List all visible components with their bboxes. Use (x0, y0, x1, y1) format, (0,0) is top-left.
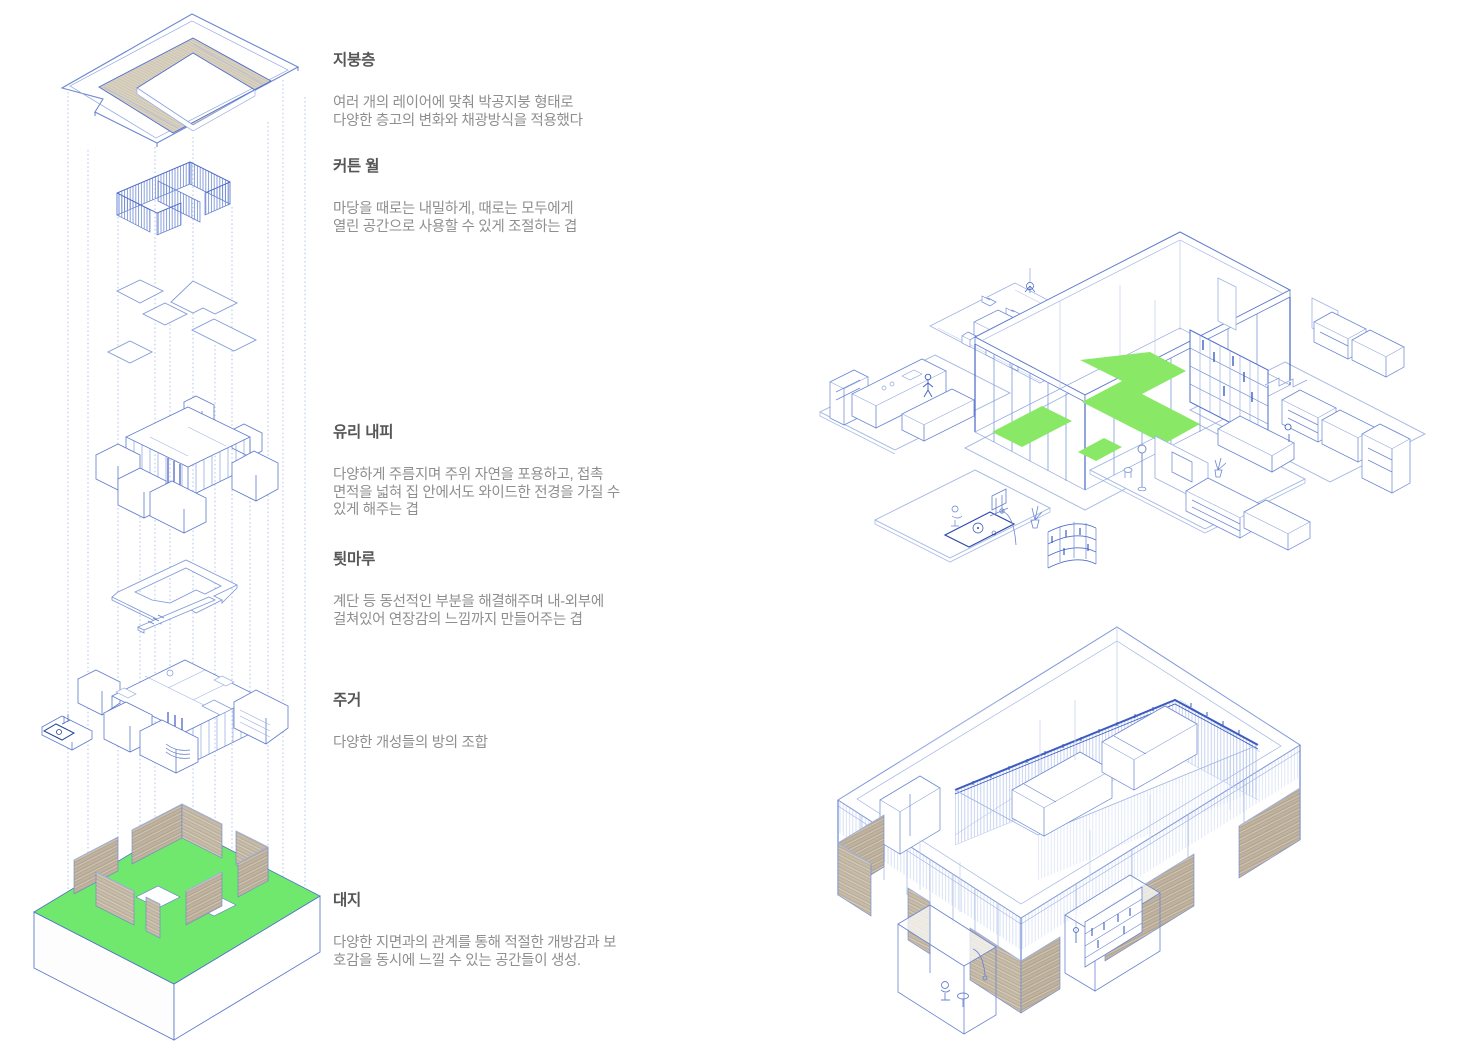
curved-shelf (1048, 522, 1096, 568)
legend-body-roof: 여러 개의 레이어에 맞춰 박공지붕 형태로 다양한 층고의 변화와 채광방식을… (333, 95, 663, 130)
layer-curtain-wall (117, 162, 230, 235)
layer-site (34, 804, 320, 1040)
layer-housing (42, 660, 288, 773)
legend-title-glass-skin: 유리 내피 (333, 420, 663, 442)
axon-building-lower (838, 627, 1300, 1034)
legend-body-glass-skin: 다양하게 주름지며 주위 자연을 포용하고, 접촉 면적을 넓혀 집 안에서도 … (333, 467, 663, 520)
legend-section-site: 대지 다양한 지면과의 관계를 통해 적절한 개방감과 보 호감을 동시에 느낄… (333, 888, 663, 970)
standing-panel (1218, 278, 1236, 330)
legend-body-housing: 다양한 개성들의 방의 조합 (333, 735, 663, 753)
exploded-axon-diagram (34, 14, 320, 1040)
legend-title-site: 대지 (333, 888, 663, 910)
legend-section-roof: 지붕층 여러 개의 레이어에 맞춰 박공지붕 형태로 다양한 층고의 변화와 채… (333, 48, 663, 130)
legend-title-toenmaru: 툇마루 (333, 547, 663, 569)
legend-body-toenmaru: 계단 등 동선적인 부분을 해결해주며 내-외부에 걸쳐있어 연장감의 느낌까지… (333, 594, 663, 629)
legend-body-site: 다양한 지면과의 관계를 통해 적절한 개방감과 보 호감을 동시에 느낄 수 … (333, 935, 663, 970)
legend-section-toenmaru: 툇마루 계단 등 동선적인 부분을 해결해주며 내-외부에 걸쳐있어 연장감의 … (333, 547, 663, 629)
legend-section-housing: 주거 다양한 개성들의 방의 조합 (333, 688, 663, 753)
legend-section-glass-skin: 유리 내피 다양하게 주름지며 주위 자연을 포용하고, 접촉 면적을 넓혀 집… (333, 420, 663, 520)
axon-interior-upper (820, 232, 1425, 568)
layer-toenmaru (112, 560, 237, 633)
layer-roof (62, 14, 298, 147)
page: 지붕층 여러 개의 레이어에 맞춰 박공지붕 형태로 다양한 층고의 변화와 채… (0, 0, 1462, 1045)
legend-title-roof: 지붕층 (333, 48, 663, 70)
legend-title-curtain-wall: 커튼 월 (333, 154, 663, 176)
layer-floating-panels (108, 280, 256, 363)
legend-section-curtain-wall: 커튼 월 마당을 때로는 내밀하게, 때로는 모두에게 열린 공간으로 사용할 … (333, 154, 663, 236)
legend-body-curtain-wall: 마당을 때로는 내밀하게, 때로는 모두에게 열린 공간으로 사용할 수 있게 … (333, 201, 663, 236)
architecture-illustration (0, 0, 1462, 1045)
layer-glass-skin (96, 396, 278, 533)
legend-title-housing: 주거 (333, 688, 663, 710)
